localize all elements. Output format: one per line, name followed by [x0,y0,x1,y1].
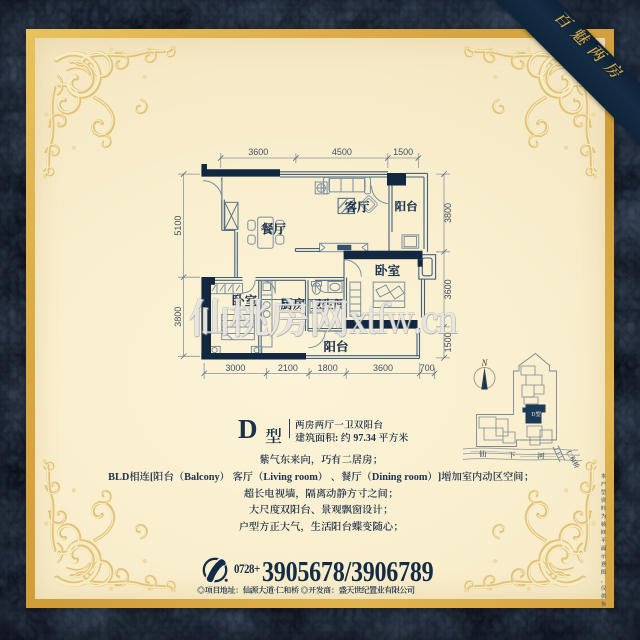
svg-text:1500: 1500 [393,147,413,157]
svg-text:2100: 2100 [278,363,298,373]
svg-text:3800: 3800 [173,307,183,327]
svg-text:3800: 3800 [443,203,453,223]
svg-text:3600: 3600 [248,147,268,157]
svg-text:1800: 1800 [318,363,338,373]
svg-text:D型: D型 [531,410,541,418]
svg-text:4500: 4500 [332,147,352,157]
svg-text:N: N [480,358,488,368]
svg-text:5100: 5100 [173,216,183,236]
svg-text:3000: 3000 [225,363,245,373]
svg-text:700: 700 [420,363,435,373]
svg-text:3600: 3600 [373,363,393,373]
